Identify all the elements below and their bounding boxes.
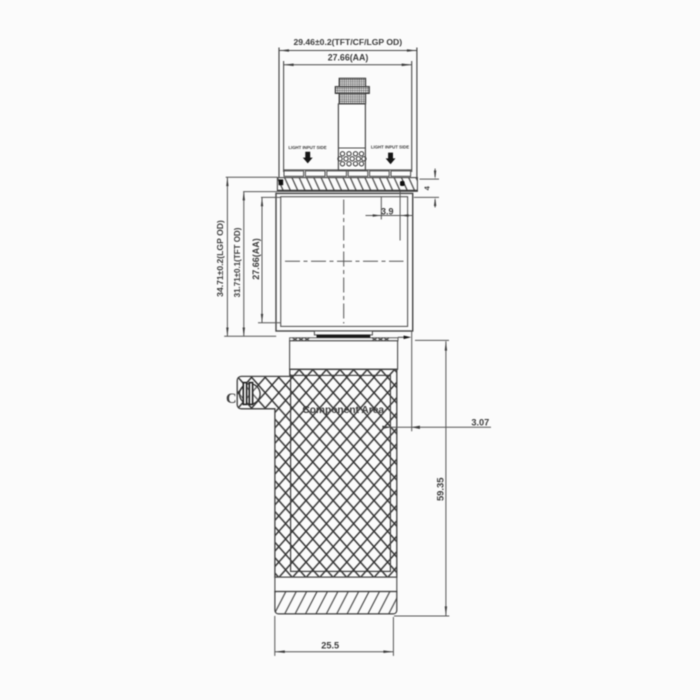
svg-text:31.71±0.1(TFT OD): 31.71±0.1(TFT OD) bbox=[233, 227, 242, 297]
svg-text:Component Area: Component Area bbox=[302, 405, 384, 416]
svg-text:LIGHT INPUT SIDE: LIGHT INPUT SIDE bbox=[371, 144, 409, 149]
svg-text:LIGHT INPUT SIDE: LIGHT INPUT SIDE bbox=[288, 145, 326, 150]
svg-text:29.46±0.2(TFT/CF/LGP OD): 29.46±0.2(TFT/CF/LGP OD) bbox=[293, 37, 402, 47]
svg-text:34.71±0.2(LGP OD): 34.71±0.2(LGP OD) bbox=[215, 220, 225, 297]
svg-text:59.35: 59.35 bbox=[434, 478, 445, 501]
svg-text:C: C bbox=[226, 391, 236, 407]
svg-text:3.9: 3.9 bbox=[381, 206, 394, 216]
svg-text:27.66(AA): 27.66(AA) bbox=[328, 53, 369, 63]
svg-text:27.66(AA): 27.66(AA) bbox=[251, 238, 261, 280]
svg-text:3.07: 3.07 bbox=[471, 417, 489, 427]
svg-text:25.5: 25.5 bbox=[321, 640, 339, 650]
